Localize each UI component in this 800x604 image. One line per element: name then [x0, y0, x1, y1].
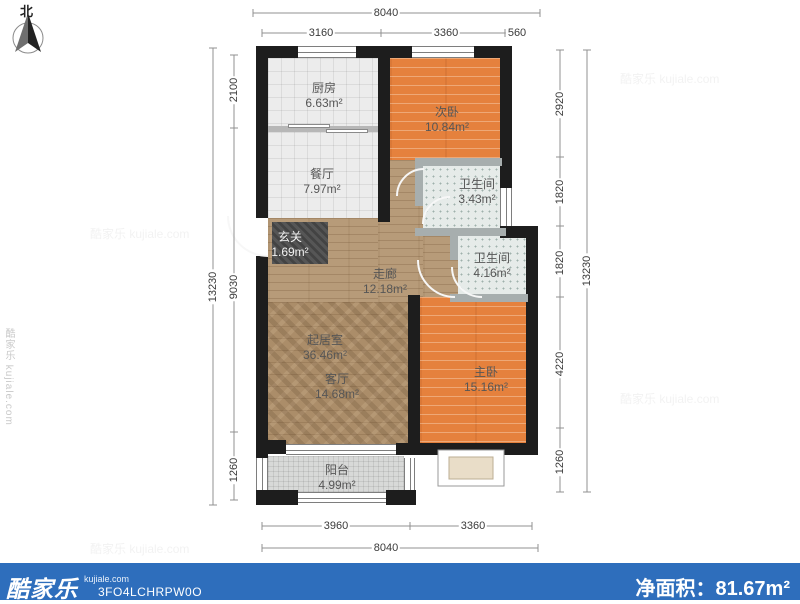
- watermark-tile: 酷家乐 kujiale.com: [90, 225, 189, 242]
- bay-window: [438, 450, 504, 486]
- room-label-entry: 玄关1.69m²: [271, 230, 308, 260]
- footer-net-area: 净面积：81.67m²: [636, 572, 791, 601]
- dim-right-seg-1: 2920: [554, 90, 566, 118]
- footer-brand-logo: 酷家乐: [6, 570, 78, 604]
- footer-plan-code: 3FO4LCHRPW0O: [98, 585, 202, 599]
- dim-bottom-seg-1: 3960: [322, 520, 350, 532]
- dim-top-total: 8040: [372, 7, 400, 19]
- room-label-bathroom-2: 卫生间4.16m²: [473, 251, 510, 281]
- dim-right-seg-5: 1260: [554, 448, 566, 476]
- watermark-tile: 酷家乐 kujiale.com: [90, 540, 189, 557]
- net-area-label: 净面积：: [636, 578, 716, 600]
- room-label-kitchen: 厨房6.63m²: [305, 81, 342, 111]
- floorplan-canvas: 北 厨房6.63m² 餐厅7.97m² 次卧10.84m² 卫生间3.43m² …: [0, 0, 800, 600]
- compass-north-label: 北: [20, 1, 33, 20]
- dim-right-total: 13230: [581, 254, 593, 289]
- dim-left-total: 13230: [207, 270, 219, 305]
- dim-left-seg-2: 9030: [228, 273, 240, 301]
- dim-left-seg-3: 1260: [228, 456, 240, 484]
- room-label-balcony: 阳台4.99m²: [318, 463, 355, 493]
- dim-right-seg-3: 1820: [554, 249, 566, 277]
- dim-right-seg-2: 1820: [554, 178, 566, 206]
- dim-right-seg-4: 4220: [554, 350, 566, 378]
- watermark-tile: 酷家乐 kujiale.com: [620, 70, 719, 87]
- door-arcs: [228, 169, 482, 297]
- dim-bottom-seg-2: 3360: [459, 520, 487, 532]
- room-label-corridor: 走廊12.18m²: [363, 267, 407, 297]
- room-label-master-bedroom: 主卧15.16m²: [464, 365, 508, 395]
- footer-brand-domain: kujiale.com: [84, 574, 129, 584]
- room-label-living: 起居室36.46m²: [303, 333, 347, 363]
- net-area-value: 81.67m²: [716, 578, 791, 600]
- dim-top-seg-3: 560: [506, 27, 528, 39]
- dim-top-seg-2: 3360: [432, 27, 460, 39]
- dim-top-seg-1: 3160: [307, 27, 335, 39]
- dim-bottom-total: 8040: [372, 542, 400, 554]
- room-label-dining: 餐厅7.97m²: [303, 167, 340, 197]
- watermark-vertical: 酷家乐 kujiale.com: [1, 328, 16, 426]
- watermark-tile: 酷家乐 kujiale.com: [620, 390, 719, 407]
- room-label-second-bedroom: 次卧10.84m²: [425, 105, 469, 135]
- room-label-parlor: 客厅14.68m²: [315, 372, 359, 402]
- dim-left-seg-1: 2100: [228, 76, 240, 104]
- room-label-bathroom-1: 卫生间3.43m²: [458, 177, 495, 207]
- plan-graphics-overlay: [0, 0, 800, 600]
